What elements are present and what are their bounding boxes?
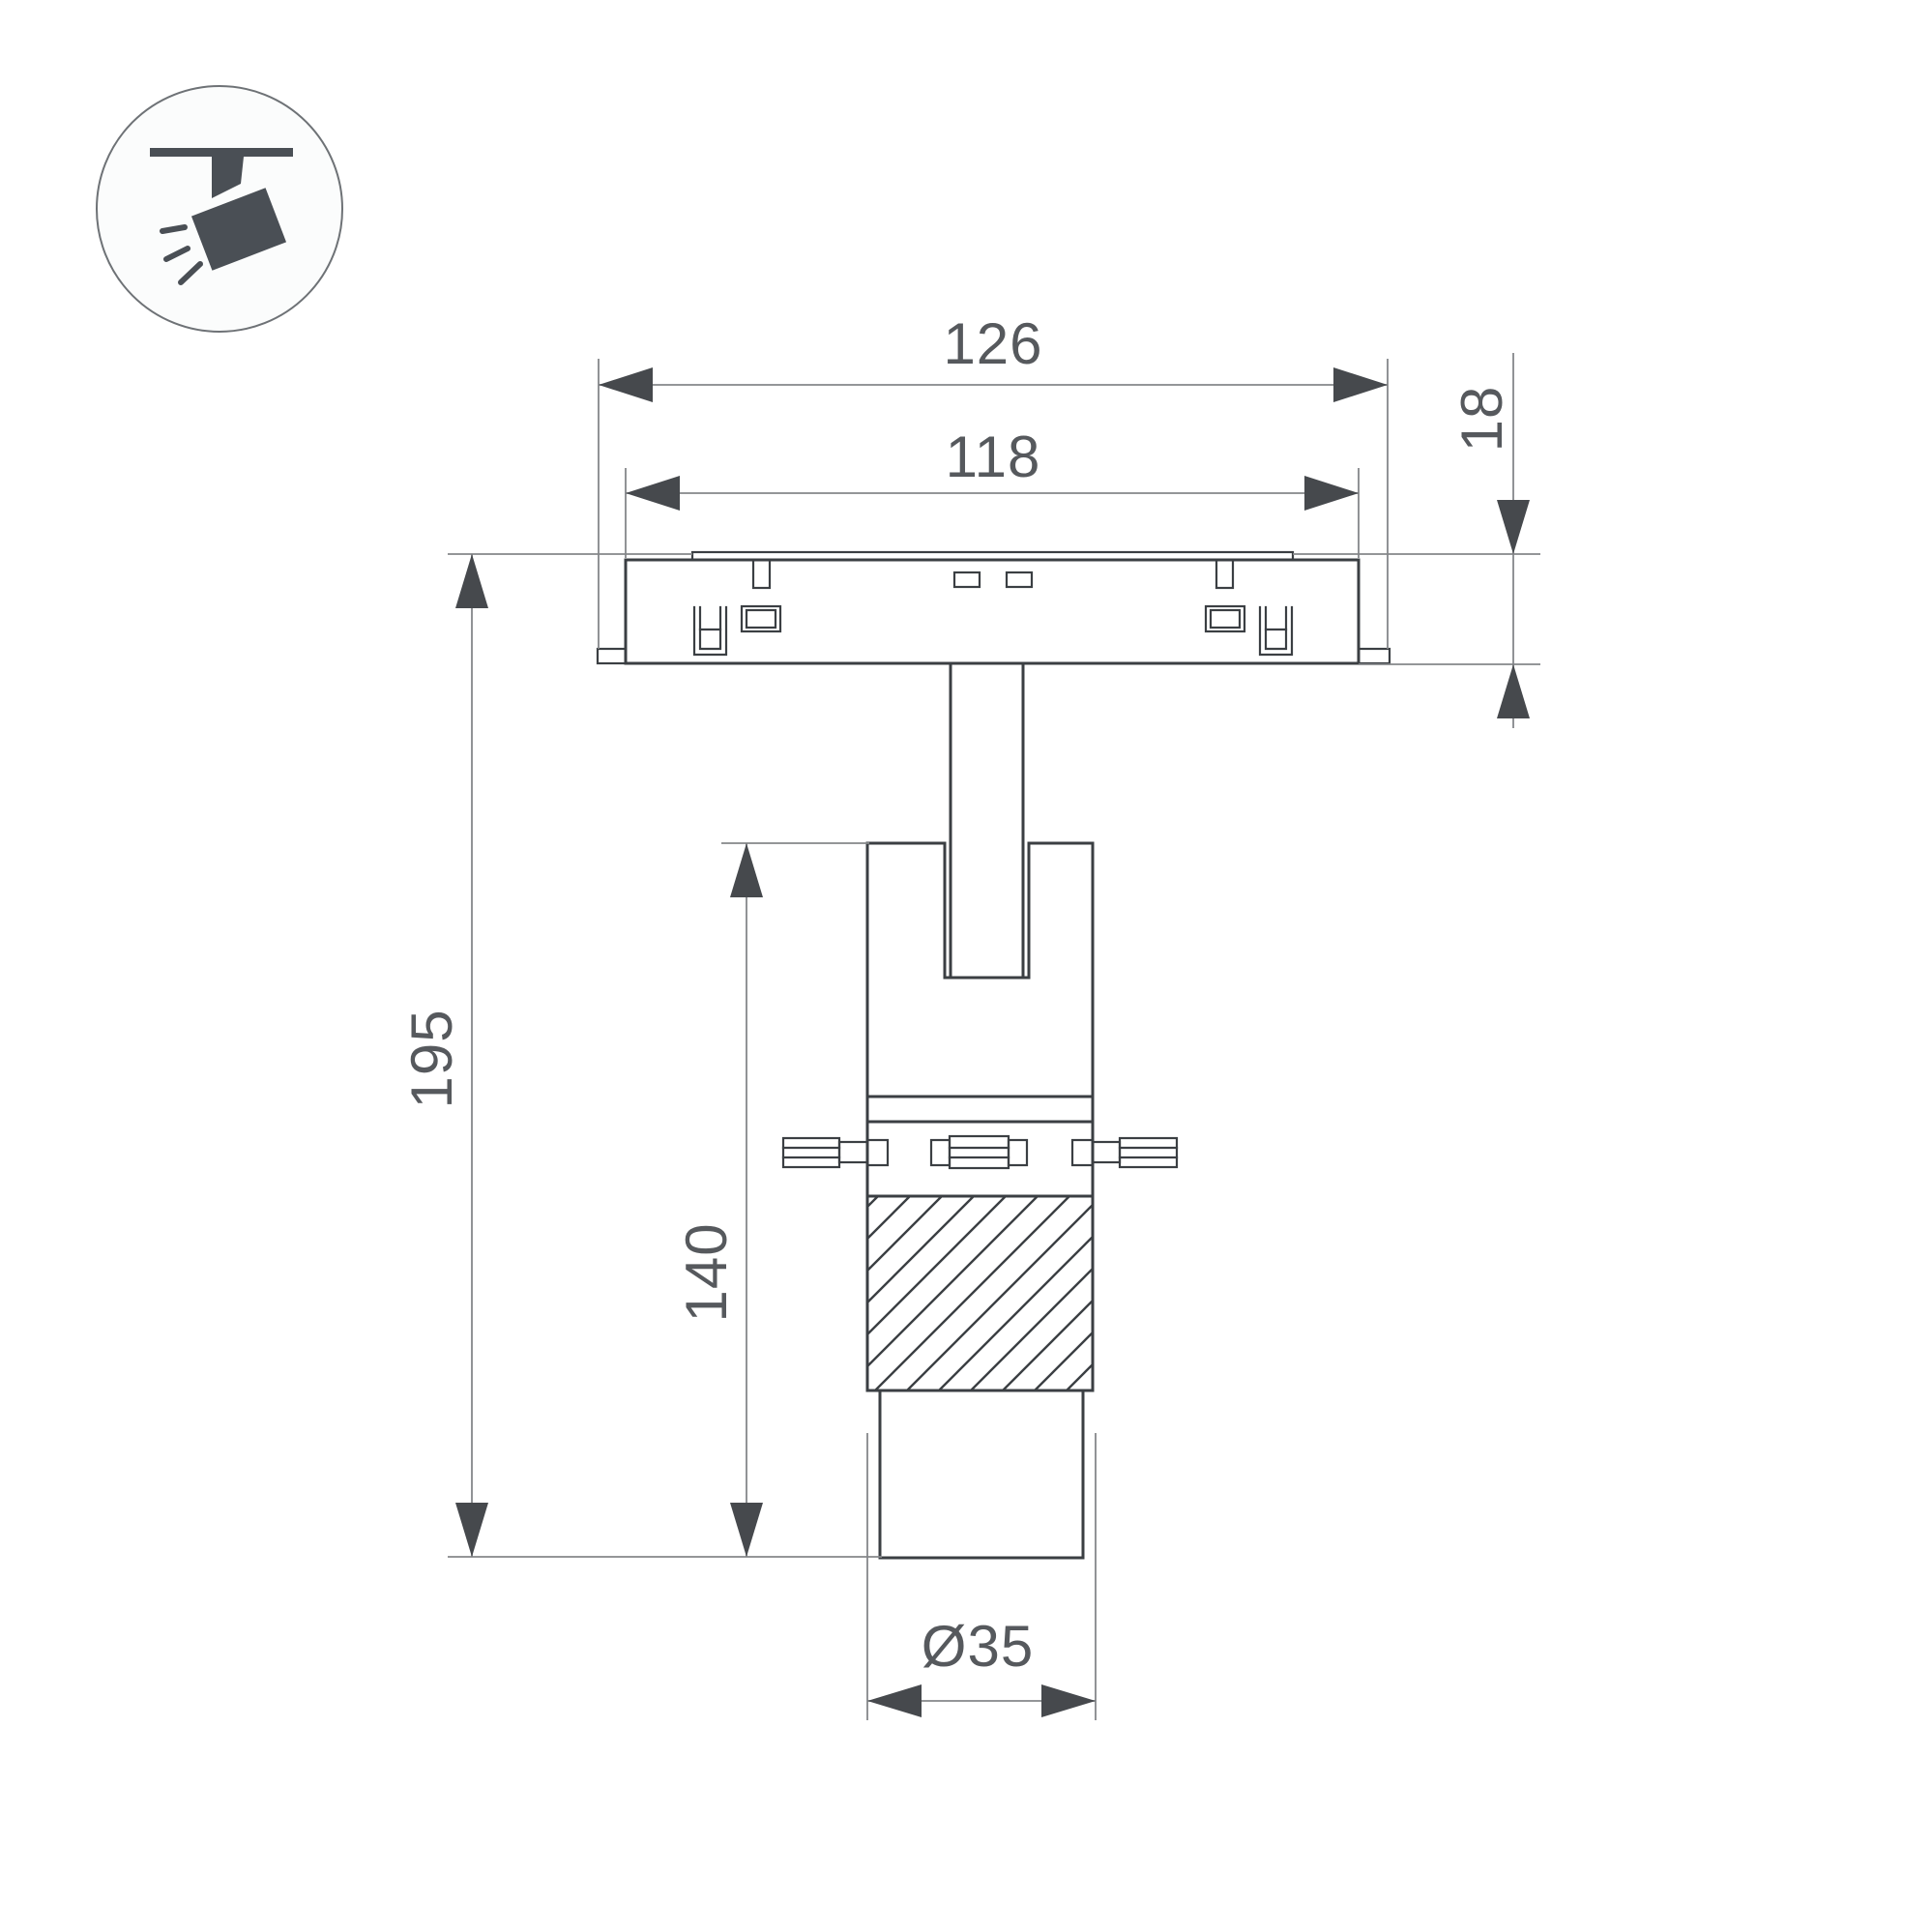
dimension-label-diameter: Ø35 — [922, 1614, 1034, 1679]
terminal-body — [950, 1136, 1009, 1168]
icon-light-ray — [162, 227, 185, 231]
dimension-track-height: 18 — [1293, 353, 1540, 728]
right-knob — [1072, 1138, 1177, 1167]
lamp-body — [783, 843, 1177, 1558]
knob-seat — [867, 1140, 888, 1165]
arrow-down-icon — [1497, 500, 1530, 554]
arrow-right-icon — [1041, 1684, 1096, 1717]
dimension-label-118: 118 — [946, 424, 1041, 489]
stem — [951, 663, 1023, 978]
arrow-right-icon — [1333, 367, 1388, 402]
housing-right-tab — [1216, 560, 1233, 588]
housing-body — [626, 560, 1359, 663]
knob-neck — [839, 1142, 867, 1162]
technical-drawing: 126 118 18 195 140 — [0, 0, 1932, 1932]
center-terminal — [931, 1136, 1027, 1168]
knob-seat — [1072, 1140, 1093, 1165]
drawing-page: 126 118 18 195 140 — [0, 0, 1932, 1932]
knob-cap — [783, 1138, 839, 1167]
product-icon — [97, 86, 342, 332]
bottom-cylinder — [880, 1390, 1083, 1558]
arrow-up-icon — [730, 843, 763, 897]
housing-left-tab — [753, 560, 770, 588]
left-knob — [783, 1138, 888, 1167]
housing-contact — [1007, 572, 1032, 587]
arrow-down-icon — [455, 1503, 488, 1557]
knob-neck — [1093, 1142, 1120, 1162]
hatched-section — [867, 1196, 1093, 1390]
track-housing — [598, 552, 1390, 663]
dimension-label-140: 140 — [674, 1222, 739, 1322]
arrow-left-icon — [599, 367, 653, 402]
dimension-label-18: 18 — [1449, 386, 1514, 453]
housing-right-clip-inner — [1211, 610, 1240, 628]
terminal-right — [1009, 1140, 1027, 1165]
knob-cap — [1120, 1138, 1177, 1167]
housing-left-foot — [598, 649, 626, 663]
dimension-label-195: 195 — [399, 1009, 464, 1108]
housing-right-foot — [1359, 649, 1390, 663]
dimension-label-126: 126 — [943, 311, 1042, 376]
housing-left-clip-inner — [746, 610, 776, 628]
dimension-total-height: 195 — [399, 554, 882, 1557]
dimension-body-diameter: Ø35 — [867, 1433, 1096, 1720]
arrow-up-icon — [455, 554, 488, 608]
dimension-track-inner-width: 118 — [626, 424, 1359, 558]
housing-right-bracket-inner — [1266, 607, 1286, 649]
arrow-down-icon — [730, 1503, 763, 1557]
housing-contact — [954, 572, 980, 587]
arrow-left-icon — [867, 1684, 922, 1717]
housing-left-bracket-inner — [700, 607, 720, 649]
arrow-left-icon — [626, 476, 680, 511]
arrow-up-icon — [1497, 664, 1530, 718]
arrow-right-icon — [1304, 476, 1359, 511]
icon-track-bar — [150, 148, 293, 157]
dimension-body-height: 140 — [674, 843, 869, 1557]
terminal-left — [931, 1140, 950, 1165]
